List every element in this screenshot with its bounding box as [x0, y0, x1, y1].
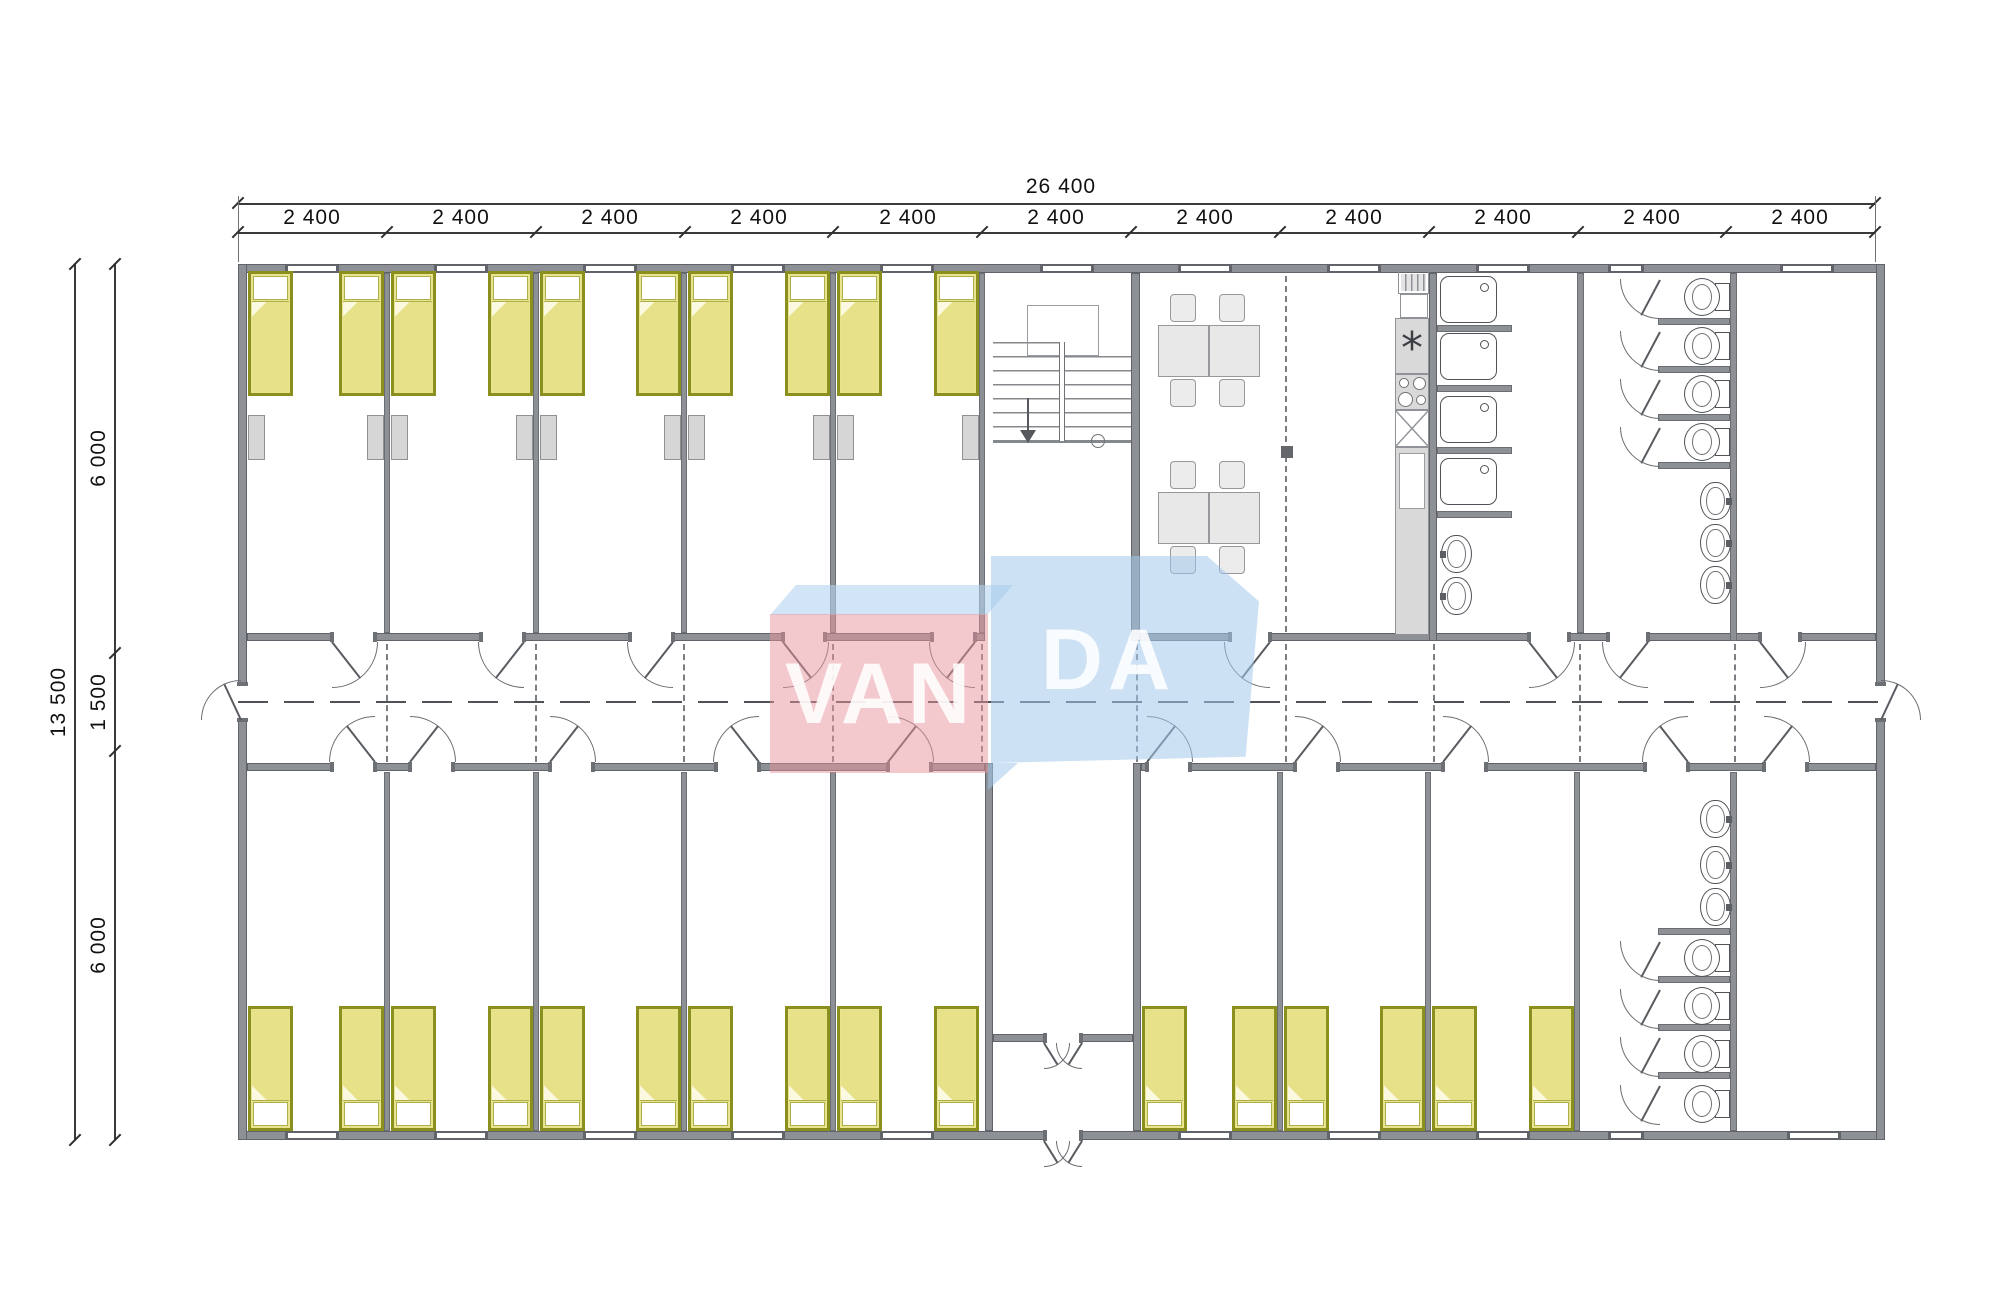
dimension-line: [74, 264, 76, 1140]
wall: [533, 273, 539, 633]
structural-column: [1281, 446, 1293, 458]
nightstand: [962, 415, 979, 460]
chair: [1170, 294, 1196, 322]
shower-tray: [1440, 276, 1497, 323]
shower-partition: [1437, 325, 1512, 332]
wall: [1425, 772, 1431, 1131]
bed: [837, 271, 882, 396]
bed: [1284, 1006, 1329, 1131]
entry-door-opening: [1043, 1130, 1083, 1141]
door-opening: [628, 632, 675, 642]
chair: [1219, 461, 1245, 489]
dimension-line: [238, 232, 1875, 234]
bed: [934, 1006, 979, 1131]
washbasin: [1700, 566, 1731, 604]
wall: [830, 273, 836, 633]
module-joint-line: [1285, 644, 1287, 762]
wc-partition: [1658, 414, 1730, 421]
chair: [1170, 379, 1196, 407]
washbasin: [1441, 535, 1472, 573]
floor-plan: 26 400 2 400 2 400 2 400 2 400 2 400 2 4…: [0, 0, 2000, 1312]
wall: [830, 772, 836, 1131]
chair: [1170, 461, 1196, 489]
door-opening: [1441, 762, 1488, 772]
counter-inset: [1399, 453, 1425, 509]
vanda-logo-band: [770, 585, 1013, 615]
bed: [1232, 1006, 1277, 1131]
dimension-label: 6 000: [88, 899, 110, 991]
bed: [1380, 1006, 1425, 1131]
vanda-logo-text-right: DA: [1026, 617, 1190, 703]
stove-burner: [1416, 395, 1426, 405]
window: [1476, 1131, 1530, 1140]
door-opening: [1043, 1033, 1083, 1043]
wc-partition: [1658, 462, 1730, 469]
module-joint-line: [683, 644, 685, 762]
window: [285, 1131, 339, 1140]
door-opening: [548, 762, 595, 772]
shower-partition: [1437, 385, 1512, 392]
dining-table: [1209, 492, 1260, 544]
module-joint-line: [1433, 644, 1435, 762]
wall: [1574, 772, 1580, 1131]
wc-partition: [1658, 1024, 1730, 1031]
door-opening: [330, 762, 377, 772]
dimension-label: 2 400: [1165, 207, 1245, 229]
dining-table: [1158, 325, 1209, 377]
bed: [1142, 1006, 1187, 1131]
toilet: [1684, 985, 1730, 1025]
module-joint-line: [386, 644, 388, 762]
wall: [979, 273, 985, 633]
chair: [1219, 294, 1245, 322]
bed: [688, 1006, 733, 1131]
dining-table: [1209, 325, 1260, 377]
shower-tray: [1440, 333, 1497, 380]
bed: [636, 1006, 681, 1131]
bed: [636, 271, 681, 396]
washbasin: [1700, 800, 1731, 838]
door-opening: [714, 762, 761, 772]
kitchen-hood: *: [1395, 318, 1429, 374]
door-opening: [1643, 762, 1690, 772]
dimension-label-overall-width: 26 400: [1021, 176, 1101, 198]
bed: [837, 1006, 882, 1131]
bed: [339, 1006, 384, 1131]
dimension-label: 2 400: [719, 207, 799, 229]
dimension-label: 1 500: [88, 656, 110, 748]
wall: [1277, 772, 1283, 1131]
bed: [391, 271, 436, 396]
bed: [785, 1006, 830, 1131]
wall: [384, 772, 390, 1131]
wc-partition: [1658, 976, 1730, 983]
dimension-label: 2 400: [868, 207, 948, 229]
toilet: [1684, 325, 1730, 365]
toilet: [1684, 1033, 1730, 1073]
nightstand: [248, 415, 265, 460]
stove-burner: [1398, 392, 1413, 407]
toilet: [1684, 1083, 1730, 1123]
bed: [688, 271, 733, 396]
kitchen-appliance: [1400, 294, 1428, 318]
kitchen-dishwasher: [1395, 410, 1429, 447]
stove-burner: [1413, 377, 1426, 390]
door-opening: [408, 762, 455, 772]
window: [1608, 1131, 1644, 1140]
door-opening: [1527, 632, 1571, 642]
nightstand: [516, 415, 533, 460]
wc-partition: [1658, 366, 1730, 373]
dimension-label: 6 000: [88, 412, 110, 504]
bed: [1529, 1006, 1574, 1131]
door-swing-arc: [286, 596, 378, 688]
bed: [934, 271, 979, 396]
window: [1476, 264, 1530, 273]
nightstand: [813, 415, 830, 460]
nightstand: [367, 415, 384, 460]
dimension-label: 2 400: [421, 207, 501, 229]
stairs-base-line: [993, 441, 1131, 443]
wall: [681, 273, 687, 633]
bed: [248, 1006, 293, 1131]
wall: [533, 772, 539, 1131]
kitchen-rack: [1398, 271, 1429, 294]
stairs-direction-arrow: [1027, 398, 1029, 432]
window: [583, 1131, 637, 1140]
bed: [488, 271, 533, 396]
window: [1787, 1131, 1841, 1140]
washbasin: [1700, 846, 1731, 884]
stairs-stringer: [1059, 342, 1065, 442]
wall-entry-west: [985, 763, 993, 1131]
vanda-logo-text-left: VAN: [772, 651, 988, 737]
bed: [339, 271, 384, 396]
dimension-label: 2 400: [1463, 207, 1543, 229]
wall: [1577, 273, 1584, 633]
nightstand: [664, 415, 681, 460]
wc-partition: [1658, 1072, 1730, 1079]
chair: [1219, 546, 1245, 574]
window: [285, 264, 339, 273]
stairs-start-marker: [1091, 434, 1105, 448]
bed: [488, 1006, 533, 1131]
window: [583, 264, 637, 273]
toilet: [1684, 421, 1730, 461]
door-opening: [1606, 632, 1650, 642]
bed: [540, 271, 585, 396]
toilet: [1684, 276, 1730, 316]
dimension-label: 2 400: [1314, 207, 1394, 229]
window: [1040, 264, 1094, 273]
window: [1327, 1131, 1381, 1140]
dining-table: [1158, 492, 1209, 544]
door-opening: [479, 632, 526, 642]
door-opening: [1758, 632, 1802, 642]
door-opening: [1293, 762, 1340, 772]
washbasin: [1700, 888, 1731, 926]
nightstand: [688, 415, 705, 460]
wall: [384, 273, 390, 633]
toilet: [1684, 937, 1730, 977]
stairs-treads: [1063, 356, 1131, 442]
wc-partition: [1658, 928, 1730, 935]
module-joint-line: [535, 644, 537, 762]
bed: [1432, 1006, 1477, 1131]
toilet: [1684, 373, 1730, 413]
window: [1178, 264, 1232, 273]
dimension-label: 2 400: [1016, 207, 1096, 229]
shower-tray: [1440, 458, 1497, 505]
dimension-label-overall-height: 13 500: [48, 656, 70, 748]
door-swing-arc: [1483, 596, 1575, 688]
bed: [391, 1006, 436, 1131]
door-opening: [1145, 762, 1192, 772]
washbasin: [1700, 482, 1731, 520]
dimension-line: [114, 264, 116, 1140]
nightstand: [540, 415, 557, 460]
dimension-label: 2 400: [1760, 207, 1840, 229]
door-opening: [330, 632, 377, 642]
window: [1780, 264, 1834, 273]
wall: [1429, 273, 1437, 641]
shower-tray: [1440, 396, 1497, 443]
window: [880, 264, 934, 273]
nightstand: [837, 415, 854, 460]
bed: [785, 271, 830, 396]
shower-partition: [1437, 447, 1512, 454]
chair: [1219, 379, 1245, 407]
shower-partition: [1437, 511, 1512, 518]
washbasin: [1700, 524, 1731, 562]
wall: [1730, 772, 1737, 1131]
door-opening: [1762, 762, 1809, 772]
window: [1608, 264, 1644, 273]
window: [434, 264, 488, 273]
stove-burner: [1399, 378, 1409, 388]
wall: [681, 772, 687, 1131]
dimension-label: 2 400: [570, 207, 650, 229]
stairs-arrowhead-icon: [1020, 430, 1036, 443]
window: [731, 1131, 785, 1140]
window: [434, 1131, 488, 1140]
dimension-label: 2 400: [1612, 207, 1692, 229]
dimension-label: 2 400: [272, 207, 352, 229]
bed: [248, 271, 293, 396]
washbasin: [1441, 577, 1472, 615]
door-swing-arc: [1714, 596, 1806, 688]
window: [1178, 1131, 1232, 1140]
nightstand: [391, 415, 408, 460]
window: [880, 1131, 934, 1140]
dimension-line: [238, 203, 1875, 205]
window: [731, 264, 785, 273]
wc-partition: [1658, 318, 1730, 325]
bed: [540, 1006, 585, 1131]
wall-entry-east: [1133, 763, 1141, 1131]
window: [1327, 264, 1381, 273]
module-joint-line: [1734, 644, 1736, 762]
module-joint-line: [1579, 644, 1581, 762]
